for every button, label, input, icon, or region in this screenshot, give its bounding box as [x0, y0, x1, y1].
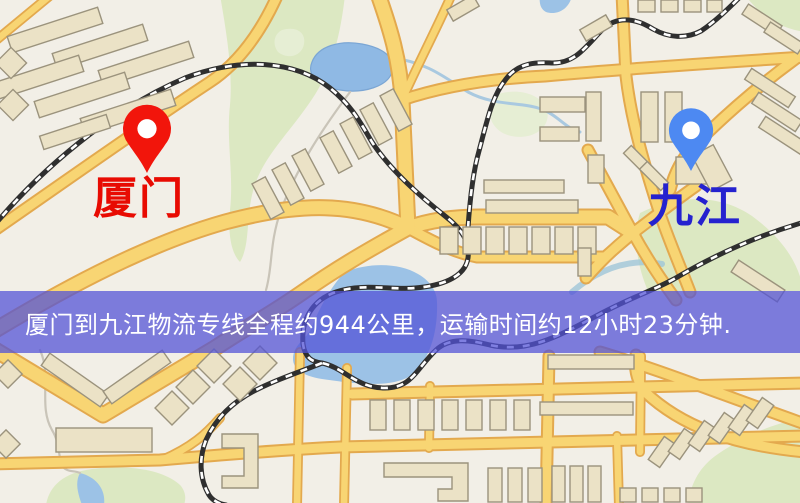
route-info-text: 厦门到九江物流专线全程约944公里，运输时间约12小时23分钟.: [25, 305, 732, 340]
route-info-banner: 厦门到九江物流专线全程约944公里，运输时间约12小时23分钟.: [0, 291, 800, 353]
origin-city-label: 厦门: [93, 177, 185, 221]
map-canvas: [0, 0, 800, 503]
destination-city-label: 九江: [648, 184, 742, 229]
map-view[interactable]: 厦门 九江 厦门到九江物流专线全程约944公里，运输时间约12小时23分钟.: [0, 0, 800, 503]
